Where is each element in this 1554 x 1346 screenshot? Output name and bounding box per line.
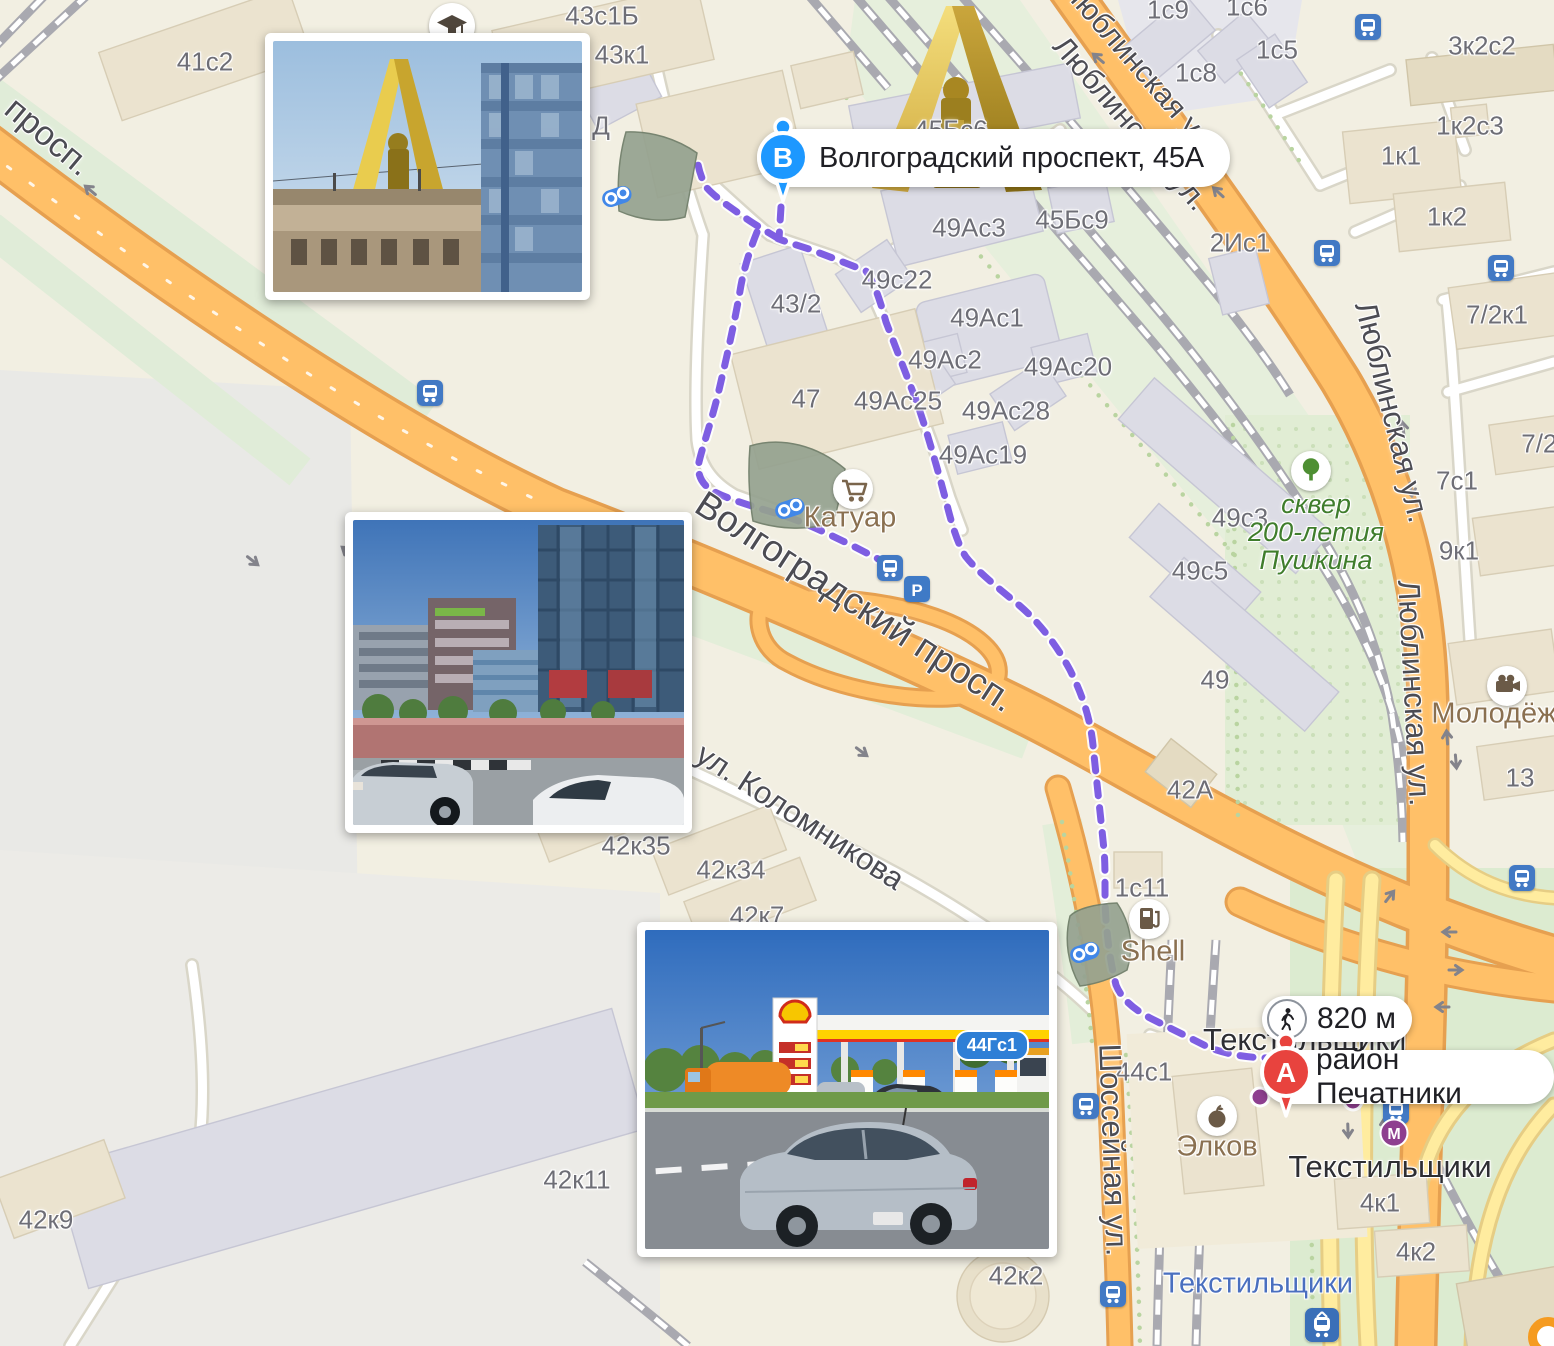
photo-offices-image (353, 520, 684, 825)
apple-icon[interactable] (1197, 1096, 1237, 1136)
destination-address: Волгоградский проспект, 45А (819, 142, 1204, 175)
metro-m-icon[interactable]: М (1379, 1118, 1409, 1148)
video-camera-icon[interactable] (1487, 666, 1527, 706)
route-distance-value: 820 м (1317, 1002, 1396, 1036)
bus-stop-icon[interactable] (1314, 240, 1340, 266)
photo-address-badge: 44Гс1 (955, 1030, 1029, 1061)
train-station-icon[interactable] (1305, 1308, 1339, 1342)
fuel-icon[interactable] (1129, 899, 1169, 939)
binoculars-icon[interactable] (1066, 936, 1104, 970)
tree-icon[interactable] (1291, 451, 1331, 491)
svg-text:А: А (1276, 1057, 1296, 1088)
bus-stop-icon[interactable] (417, 380, 443, 406)
svg-text:P: P (911, 581, 922, 600)
origin-address: район Печатники (1316, 1043, 1530, 1111)
bus-stop-icon[interactable] (877, 555, 903, 581)
route-point-a-pin[interactable]: А (1251, 1024, 1321, 1120)
bus-stop-icon[interactable] (1073, 1093, 1099, 1119)
map-canvas[interactable]: 41с243к143с1БД45Бс645Бс949Ас349с2243/249… (0, 0, 1554, 1346)
bus-stop-icon[interactable] (1509, 865, 1535, 891)
street-photo-offices[interactable] (345, 512, 692, 833)
svg-text:М: М (1387, 1126, 1400, 1143)
bus-stop-icon[interactable] (1488, 255, 1514, 281)
shopping-cart-icon[interactable] (833, 469, 873, 509)
photo-shell-image (645, 930, 1049, 1249)
bus-stop-icon[interactable] (1100, 1281, 1126, 1307)
route-point-b-pin[interactable]: В (748, 109, 818, 205)
binoculars-icon[interactable] (771, 492, 809, 526)
street-photo-shell-station[interactable]: 44Гс1 (637, 922, 1057, 1257)
photo-monument-image (273, 41, 582, 292)
binoculars-icon[interactable] (598, 180, 636, 214)
destination-label[interactable]: Волгоградский проспект, 45А (757, 129, 1230, 187)
svg-text:В: В (773, 142, 793, 173)
photo-suv (353, 762, 473, 825)
parking-icon[interactable]: P (904, 576, 930, 602)
street-photo-monument[interactable] (265, 33, 590, 300)
bus-stop-icon[interactable] (1355, 14, 1381, 40)
